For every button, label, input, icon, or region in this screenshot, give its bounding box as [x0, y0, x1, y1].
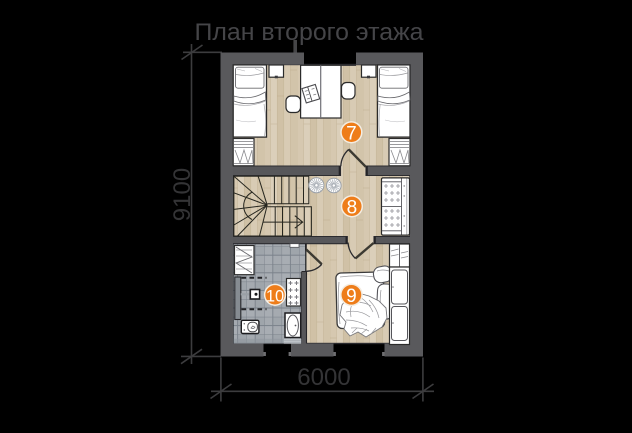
svg-text:10: 10 — [266, 287, 284, 305]
svg-text:9: 9 — [346, 286, 357, 307]
svg-text:7: 7 — [346, 123, 357, 144]
svg-text:6000: 6000 — [297, 364, 350, 391]
svg-text:План второго этажа: План второго этажа — [195, 19, 425, 46]
svg-text:9100: 9100 — [169, 168, 196, 221]
svg-text:8: 8 — [347, 197, 358, 218]
